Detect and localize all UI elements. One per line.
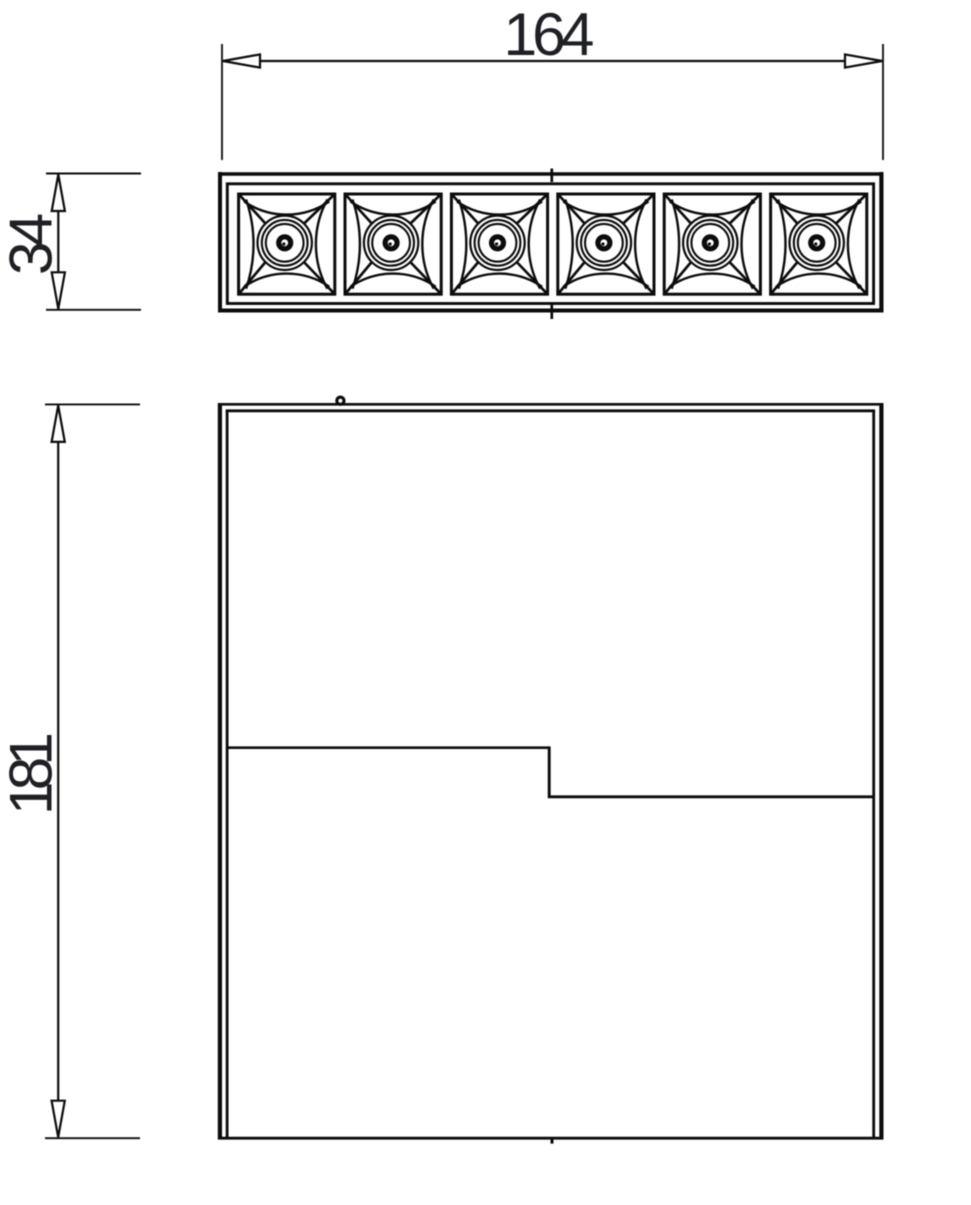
svg-text:164: 164 xyxy=(504,0,593,68)
svg-text:181: 181 xyxy=(0,735,65,815)
svg-text:34: 34 xyxy=(0,215,65,276)
